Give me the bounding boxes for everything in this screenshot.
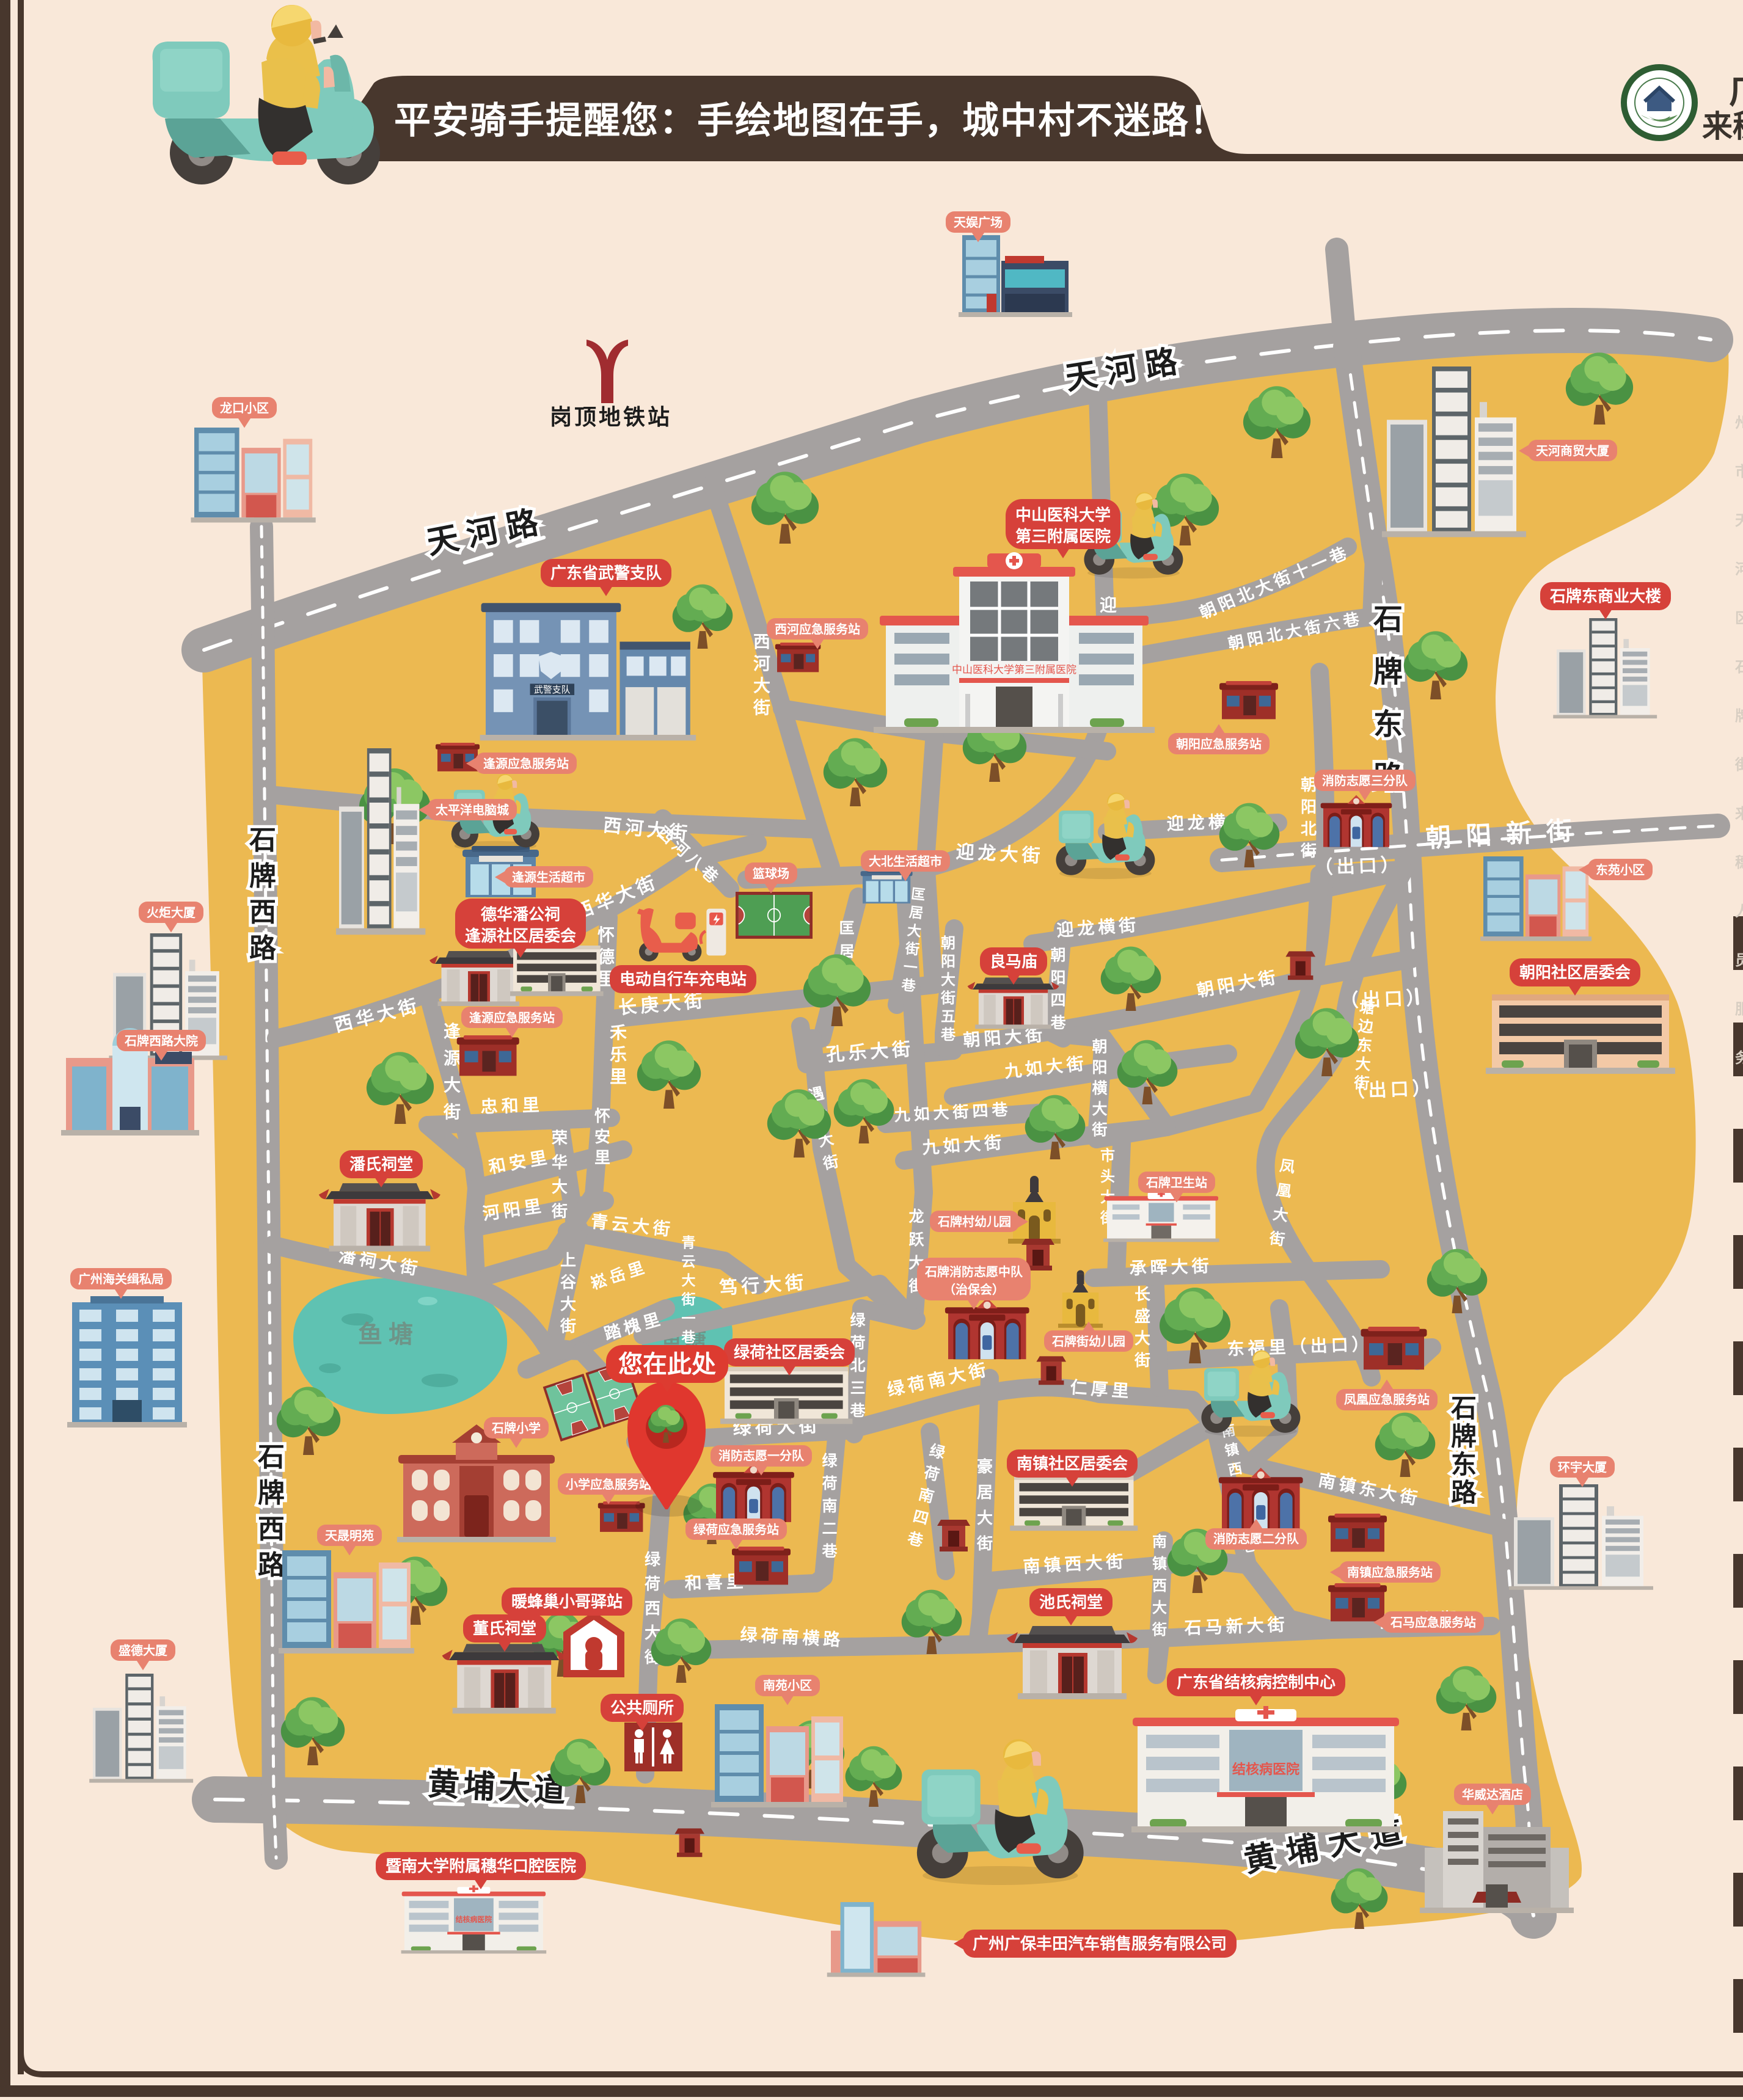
svg-text:暨南大学附属穗华口腔医院: 暨南大学附属穗华口腔医院: [386, 1857, 576, 1875]
svg-text:（出口）: （出口）: [1314, 855, 1403, 878]
svg-text:广东省结核病控制中心: 广东省结核病控制中心: [1177, 1673, 1336, 1691]
svg-text:石牌街幼儿园: 石牌街幼儿园: [1051, 1334, 1125, 1349]
svg-text:石牌西路大院: 石牌西路大院: [124, 1034, 198, 1048]
svg-text:黄埔大道: 黄埔大道: [427, 1766, 571, 1809]
svg-text:石牌东路: 石牌东路: [1451, 1394, 1477, 1507]
svg-text:第三附属医院: 第三附属医院: [1015, 527, 1111, 545]
svg-text:承晖大街: 承晖大街: [1129, 1256, 1213, 1278]
svg-text:（出口）: （出口）: [1340, 988, 1428, 1012]
svg-text:绿荷应急服务站: 绿荷应急服务站: [693, 1522, 779, 1537]
svg-text:禾乐里: 禾乐里: [610, 1023, 627, 1086]
svg-text:东苑小区: 东苑小区: [1596, 862, 1645, 877]
svg-text:消防志愿三分队: 消防志愿三分队: [1322, 773, 1408, 788]
svg-text:潘氏祠堂: 潘氏祠堂: [349, 1155, 413, 1173]
svg-text:德华潘公祠: 德华潘公祠: [481, 905, 560, 924]
svg-text:广: 广: [1729, 71, 1743, 111]
svg-text:来穗: 来穗: [1702, 109, 1743, 144]
svg-text:广东省武警支队: 广东省武警支队: [550, 564, 662, 582]
svg-text:良马庙: 良马庙: [990, 952, 1037, 971]
svg-text:逢源应急服务站: 逢源应急服务站: [469, 1010, 555, 1025]
svg-text:逢源生活超市: 逢源生活超市: [512, 870, 585, 884]
svg-text:董氏祠堂: 董氏祠堂: [473, 1619, 536, 1638]
svg-text:石牌东商业大楼: 石牌东商业大楼: [1549, 587, 1661, 605]
svg-text:池氏祠堂: 池氏祠堂: [1039, 1593, 1103, 1611]
svg-text:您在此处: 您在此处: [618, 1351, 716, 1378]
svg-text:中山医科大学: 中山医科大学: [1015, 506, 1111, 524]
svg-text:公共厕所: 公共厕所: [610, 1699, 674, 1717]
svg-text:平安骑手提醒您：手绘地图在手，城中村不迷路！: 平安骑手提醒您：手绘地图在手，城中村不迷路！: [394, 100, 1227, 141]
svg-text:广州海关缉私局: 广州海关缉私局: [78, 1272, 164, 1286]
svg-text:石牌村幼儿园: 石牌村幼儿园: [937, 1214, 1011, 1229]
svg-text:西河应急服务站: 西河应急服务站: [775, 622, 860, 636]
svg-text:朝阳社区居委会: 朝阳社区居委会: [1519, 963, 1631, 982]
svg-text:鱼塘: 鱼塘: [358, 1321, 419, 1348]
svg-text:凤凰应急服务站: 凤凰应急服务站: [1344, 1392, 1430, 1407]
svg-text:绿荷社区居委会: 绿荷社区居委会: [734, 1343, 845, 1362]
svg-text:天晟明苑: 天晟明苑: [325, 1529, 374, 1543]
svg-text:天娱广场: 天娱广场: [954, 215, 1003, 230]
svg-text:南苑小区: 南苑小区: [763, 1679, 812, 1693]
svg-text:天河商贸大厦: 天河商贸大厦: [1536, 443, 1610, 458]
svg-text:绿荷南二巷: 绿荷南二巷: [821, 1452, 838, 1560]
svg-text:广州广保丰田汽车销售服务有限公司: 广州广保丰田汽车销售服务有限公司: [973, 1934, 1227, 1953]
svg-text:南镇社区居委会: 南镇社区居委会: [1017, 1454, 1128, 1473]
svg-text:岗顶地铁站: 岗顶地铁站: [550, 404, 672, 429]
svg-text:电动自行车充电站: 电动自行车充电站: [619, 970, 747, 988]
svg-text:盛德大厦: 盛德大厦: [119, 1643, 168, 1658]
svg-text:火炬大厦: 火炬大厦: [147, 906, 196, 920]
svg-text:消防志愿二分队: 消防志愿二分队: [1213, 1531, 1299, 1546]
svg-text:消防志愿一分队: 消防志愿一分队: [718, 1448, 805, 1463]
svg-text:华威达酒店: 华威达酒店: [1462, 1787, 1523, 1802]
svg-text:绿荷北三巷: 绿荷北三巷: [849, 1311, 866, 1420]
svg-text:太平洋电脑城: 太平洋电脑城: [436, 803, 509, 817]
svg-text:小学应急服务站: 小学应急服务站: [566, 1477, 651, 1492]
svg-text:朝阳应急服务站: 朝阳应急服务站: [1176, 737, 1262, 751]
svg-text:石马新大街: 石马新大街: [1183, 1614, 1288, 1638]
svg-text:环宇大厦: 环宇大厦: [1558, 1460, 1607, 1475]
svg-text:忠和里: 忠和里: [480, 1095, 543, 1117]
svg-text:朝阳横大街: 朝阳横大街: [1091, 1038, 1107, 1139]
svg-text:南镇应急服务站: 南镇应急服务站: [1347, 1565, 1433, 1580]
svg-text:逢源应急服务站: 逢源应急服务站: [483, 756, 569, 771]
svg-text:（出口）: （出口）: [1346, 1078, 1434, 1102]
svg-text:龙口小区: 龙口小区: [220, 401, 269, 415]
svg-text:篮球场: 篮球场: [752, 866, 789, 881]
svg-text:大北生活超市: 大北生活超市: [869, 854, 942, 869]
svg-text:石牌小学: 石牌小学: [491, 1421, 541, 1435]
svg-text:石牌卫生站: 石牌卫生站: [1146, 1175, 1207, 1190]
svg-text:逢源社区居委会: 逢源社区居委会: [465, 927, 576, 945]
svg-text:南镇西大街: 南镇西大街: [1152, 1534, 1167, 1638]
svg-text:石牌消防志愿中队: 石牌消防志愿中队: [924, 1264, 1023, 1279]
svg-text:怀安里: 怀安里: [594, 1107, 610, 1167]
svg-text:（治保会）: （治保会）: [943, 1282, 1004, 1297]
svg-text:石马应急服务站: 石马应急服务站: [1390, 1615, 1476, 1630]
svg-text:暖蜂巢小哥驿站: 暖蜂巢小哥驿站: [511, 1592, 623, 1611]
